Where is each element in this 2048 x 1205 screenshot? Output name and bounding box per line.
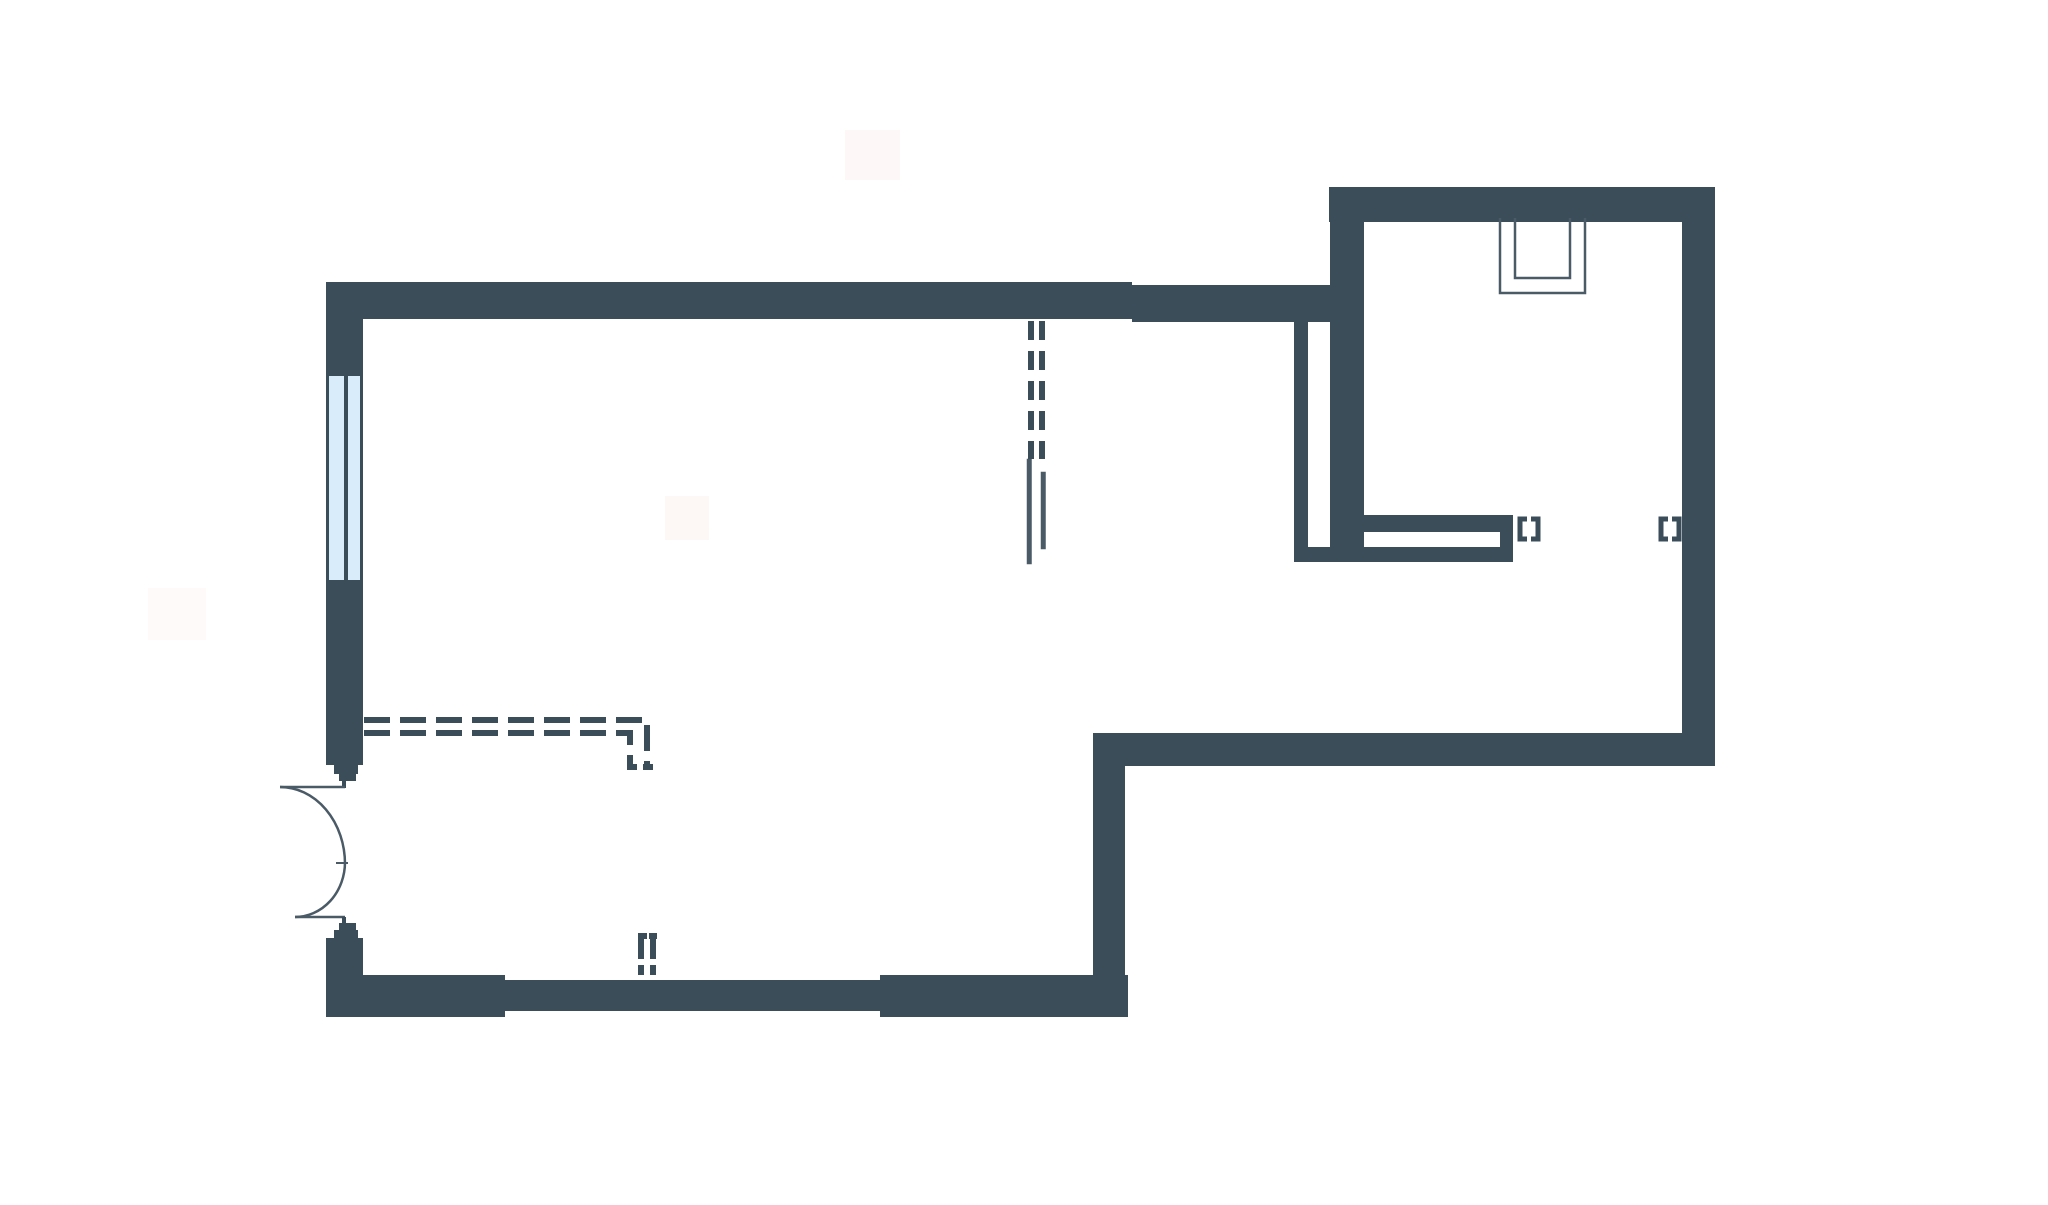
ceiling-dash-inner — [364, 733, 630, 764]
stain-blob-mid — [665, 496, 709, 540]
opening-bracket-2-right — [1672, 519, 1679, 539]
floor-plan-drawing — [0, 0, 2048, 1205]
door-jamb-upper-inner — [339, 774, 356, 781]
shaft-mid-outer — [1028, 460, 1031, 563]
ceiling-dash-outer — [364, 720, 647, 767]
step-wall-vertical — [1093, 733, 1125, 1017]
door-swing-upper — [280, 787, 345, 864]
door-jamb-lower-outer — [334, 930, 358, 938]
door-stem-lower — [342, 917, 346, 923]
door-swing-lower — [295, 862, 345, 917]
room-left-wall — [1330, 187, 1364, 562]
bottom-wall-middle — [505, 980, 880, 1011]
stain-blob-left — [148, 588, 206, 640]
door-jamb-lower-inner — [339, 923, 356, 930]
opening-bracket-1-left — [1520, 519, 1527, 539]
lower-section-bottom-wall — [1093, 733, 1715, 766]
niche-slot — [1364, 532, 1500, 547]
top-wall-right — [1132, 285, 1330, 322]
shaft-top-right-outer — [1500, 218, 1585, 293]
right-wall — [1682, 187, 1715, 766]
stain-blob-top — [845, 130, 900, 180]
bottom-wall-left — [326, 975, 505, 1017]
door-jamb-upper-outer — [334, 765, 358, 774]
opening-bracket-2-left — [1661, 519, 1668, 539]
pipe-dash-cap-right — [649, 933, 657, 939]
pipe-dash-cap-left — [638, 933, 647, 939]
floor-plan-page — [0, 0, 2048, 1205]
ceiling-dash-foot-right — [643, 764, 653, 770]
cavity-wall-floor — [1294, 547, 1364, 562]
opening-bracket-1-right — [1531, 519, 1538, 539]
window-pane-right — [348, 376, 360, 580]
bottom-wall-right — [880, 975, 1128, 1017]
cavity-wall-line — [1294, 320, 1308, 560]
top-wall-main — [329, 282, 1132, 319]
window-pane-left — [329, 376, 344, 580]
shaft-mid-inner — [1042, 473, 1045, 548]
room-top-wall — [1329, 187, 1715, 222]
shaft-top-right-inner — [1515, 218, 1570, 278]
ceiling-dash-foot-left — [627, 764, 637, 770]
